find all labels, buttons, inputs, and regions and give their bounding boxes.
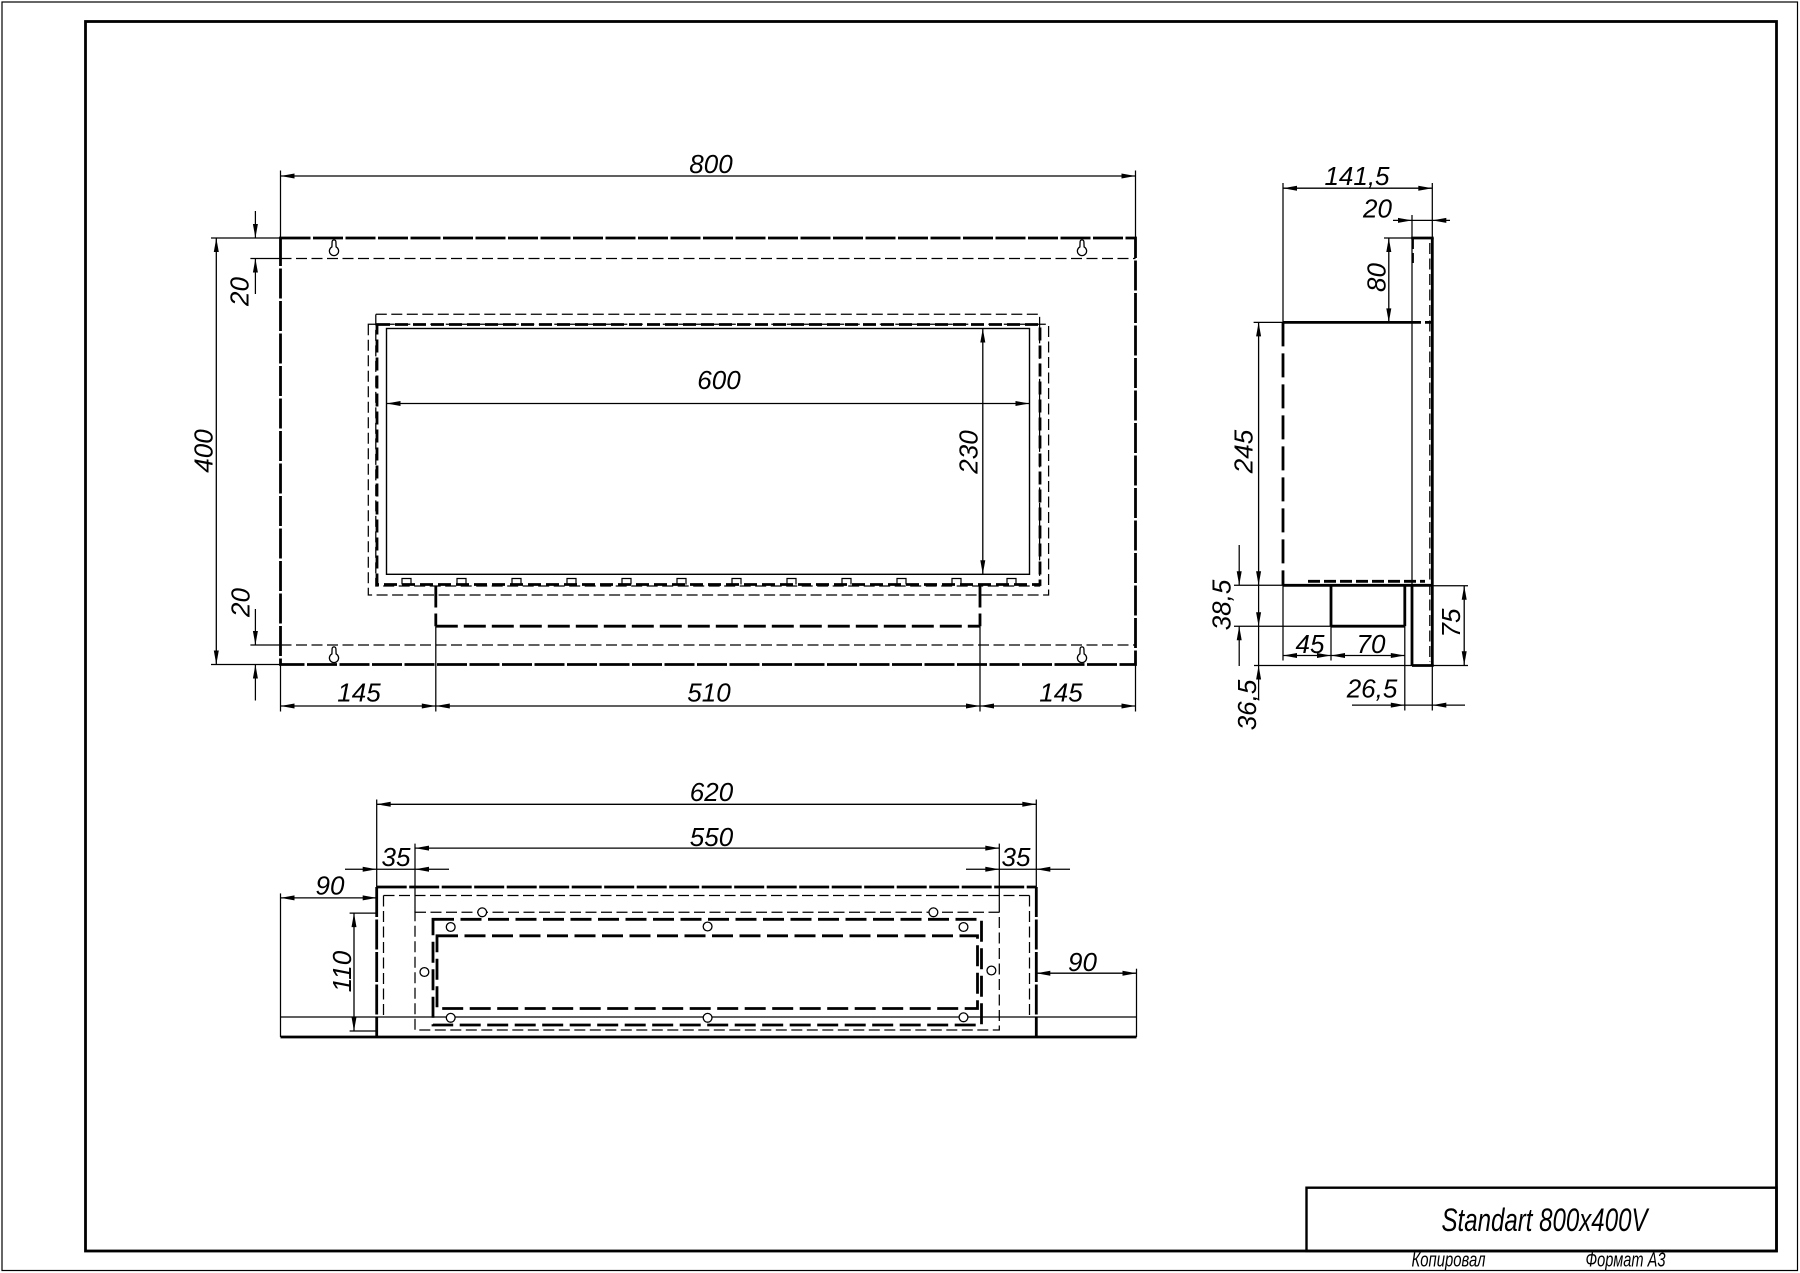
svg-text:141,5: 141,5 [1324,161,1390,191]
svg-text:Standart 800x400V: Standart 800x400V [1442,1202,1650,1238]
svg-text:45: 45 [1296,629,1325,659]
svg-text:90: 90 [1068,947,1097,977]
svg-text:80: 80 [1362,263,1392,292]
svg-text:20: 20 [225,277,255,307]
svg-text:Копировал: Копировал [1412,1250,1486,1272]
svg-text:36,5: 36,5 [1232,679,1262,730]
svg-text:550: 550 [690,822,734,852]
svg-text:20: 20 [226,588,256,618]
svg-text:400: 400 [189,429,219,473]
svg-text:20: 20 [1362,194,1392,224]
svg-text:145: 145 [337,678,381,708]
svg-text:600: 600 [697,365,741,395]
svg-text:70: 70 [1357,629,1386,659]
svg-text:800: 800 [689,149,733,179]
svg-text:Формат А3: Формат А3 [1586,1250,1666,1272]
svg-text:110: 110 [327,950,357,992]
svg-text:90: 90 [316,871,345,901]
svg-text:26,5: 26,5 [1346,674,1398,704]
svg-text:75: 75 [1436,608,1466,637]
svg-text:620: 620 [690,777,734,807]
svg-text:245: 245 [1229,429,1259,474]
svg-text:35: 35 [382,842,411,872]
svg-text:35: 35 [1002,842,1031,872]
svg-text:510: 510 [687,678,731,708]
svg-text:145: 145 [1039,678,1083,708]
svg-text:38,5: 38,5 [1207,579,1237,630]
svg-text:230: 230 [954,430,984,475]
